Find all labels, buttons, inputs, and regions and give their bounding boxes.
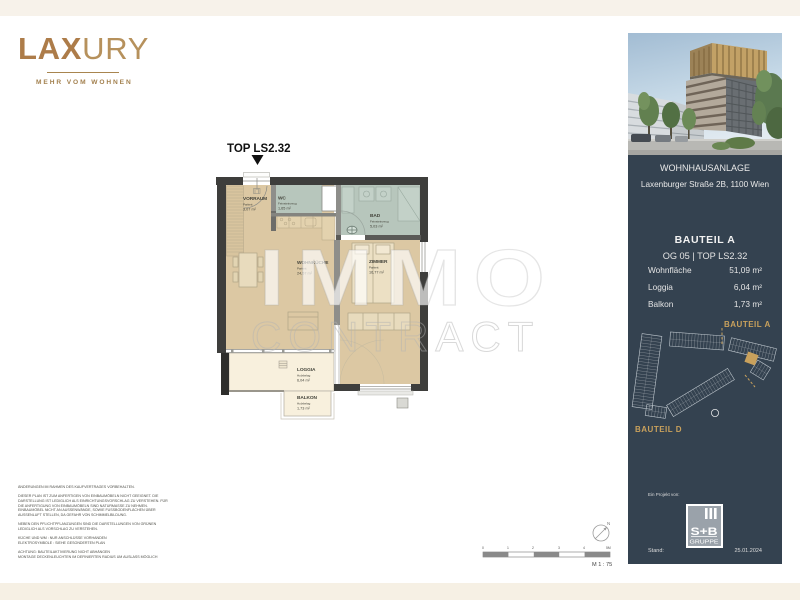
svg-text:1,73 m²: 1,73 m² — [297, 407, 311, 411]
svg-text:GRUPPE: GRUPPE — [690, 540, 720, 546]
svg-text:Parkett: Parkett — [243, 203, 253, 207]
svg-text:Feinsteinzeug: Feinsteinzeug — [370, 220, 389, 224]
svg-text:BAD: BAD — [370, 213, 381, 219]
svg-text:Holzbelag: Holzbelag — [297, 402, 311, 406]
svg-text:1,65 m²: 1,65 m² — [278, 207, 292, 211]
svg-text:4: 4 — [583, 546, 585, 550]
svg-text:N: N — [607, 521, 610, 526]
svg-text:VORRAUM: VORRAUM — [243, 196, 267, 202]
svg-text:3,07 m²: 3,07 m² — [243, 208, 257, 212]
svg-text:Holzbelag: Holzbelag — [297, 374, 311, 378]
svg-text:3: 3 — [558, 546, 560, 550]
svg-text:5,03 m²: 5,03 m² — [370, 225, 384, 229]
svg-text:BALKON: BALKON — [297, 395, 318, 401]
svg-text:6,04 m²: 6,04 m² — [297, 379, 311, 383]
svg-text:5M: 5M — [606, 546, 611, 550]
svg-text:LOGGIA: LOGGIA — [297, 367, 316, 373]
svg-text:Feinsteinzeug: Feinsteinzeug — [278, 202, 297, 206]
svg-text:0: 0 — [482, 546, 484, 550]
svg-text:TOP LS2.32: TOP LS2.32 — [227, 143, 291, 155]
svg-text:1: 1 — [507, 546, 509, 550]
svg-text:M 1 : 75: M 1 : 75 — [592, 562, 612, 568]
svg-text:2: 2 — [532, 546, 534, 550]
